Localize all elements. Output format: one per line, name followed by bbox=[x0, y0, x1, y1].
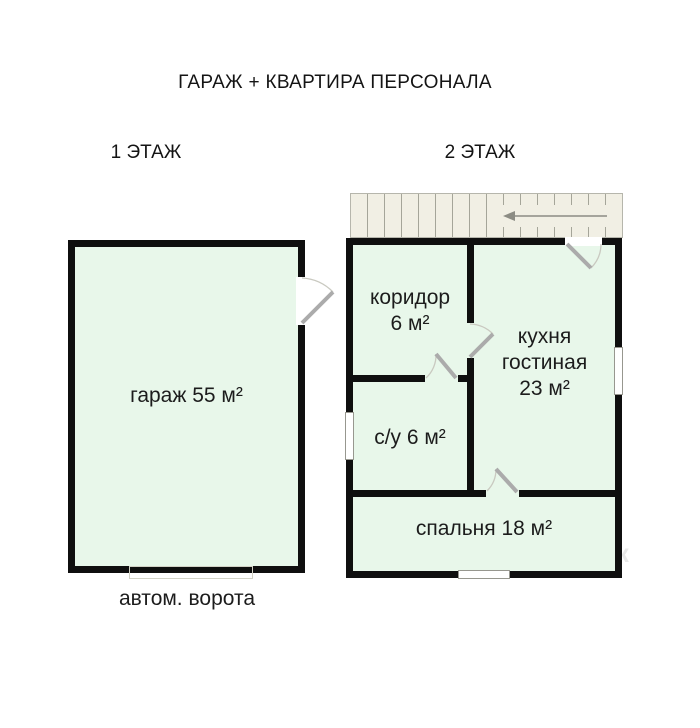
door-leaf bbox=[302, 292, 333, 323]
garage-label: гараж 55 м² bbox=[68, 383, 305, 409]
kitchen-living-label: кухня гостиная 23 м² bbox=[474, 324, 615, 402]
kitchen-label-line1: кухня bbox=[474, 324, 615, 350]
floorplan-canvas: Вельга Ветрин менск ГАРАЖ + КВАРТИРА ПЕР… bbox=[0, 0, 700, 728]
door-leaf bbox=[496, 469, 517, 492]
corridor-label-line2: 6 м² bbox=[353, 311, 467, 337]
door-leaf bbox=[436, 354, 456, 378]
corridor-label-line1: коридор bbox=[353, 285, 467, 311]
door-swing-arc bbox=[591, 244, 601, 268]
bathroom-label: с/у 6 м² bbox=[353, 425, 467, 451]
door-leaf bbox=[567, 244, 591, 268]
door-swing-arc bbox=[426, 354, 436, 378]
door-swing-arc bbox=[302, 278, 333, 292]
kitchen-label-line2: гостиная bbox=[474, 350, 615, 376]
kitchen-label-line3: 23 м² bbox=[474, 376, 615, 402]
door-swing-arc bbox=[487, 469, 496, 491]
gate-label: автом. ворота bbox=[58, 586, 316, 612]
bedroom-label: спальня 18 м² bbox=[353, 516, 615, 542]
corridor-label: коридор 6 м² bbox=[353, 285, 467, 337]
